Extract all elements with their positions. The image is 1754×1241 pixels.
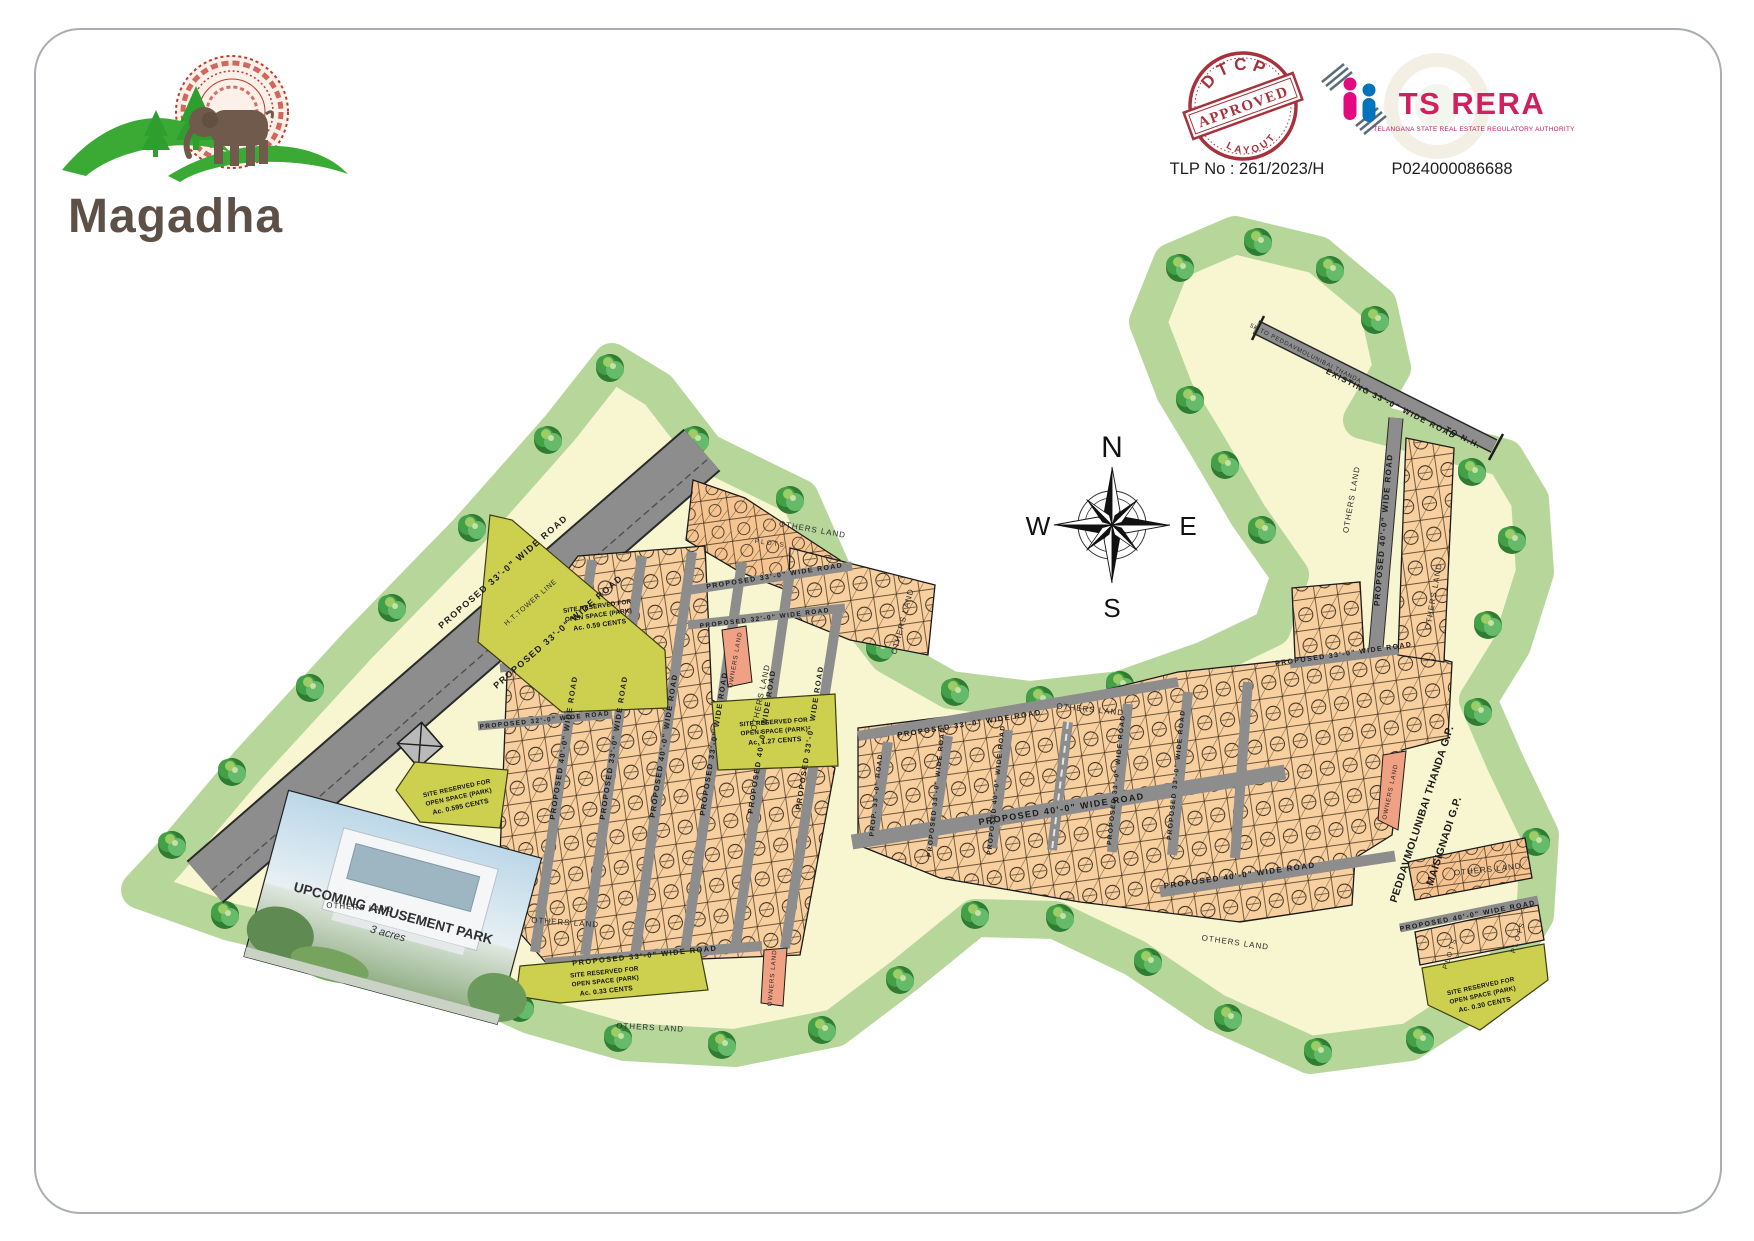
tlp-number: TLP No : 261/2023/H [1170,160,1325,178]
tree-icon [296,674,324,702]
tree-icon [708,1031,736,1059]
tree-icon [211,901,239,929]
tree-icon [1464,698,1492,726]
rera-subtitle: TELANGANA STATE REAL ESTATE REGULATORY A… [1373,126,1575,133]
tree-icon [378,594,406,622]
tree-icon [776,486,804,514]
compass-rose: N E S W [1026,431,1197,623]
tree-icon [1458,458,1486,486]
tree-icon [158,831,186,859]
layout-flyer: UPCOMING AMUSEMENT PARK 3 acres PROPOSED… [0,0,1754,1241]
tree-icon [1214,1004,1242,1032]
tree-icon [1498,526,1526,554]
compass-west-label: W [1026,511,1051,541]
tree-icon [458,514,486,542]
tree-icon [886,966,914,994]
tree-icon [1406,1026,1434,1054]
tree-icon [1244,228,1272,256]
tree-icon [1361,306,1389,334]
tree-icon [1474,611,1502,639]
tree-icon [534,426,562,454]
tree-icon [1134,948,1162,976]
compass-south-label: S [1103,593,1120,623]
compass-star [1054,467,1170,583]
tree-icon [1176,386,1204,414]
brand-logo: Magadha [62,56,348,243]
compass-north-label: N [1101,431,1123,464]
tree-icon [1304,1038,1332,1066]
rera-registration-number: P024000086688 [1391,160,1512,178]
compass-east-label: E [1179,511,1196,541]
tree-icon [1046,904,1074,932]
tree-icon [1211,451,1239,479]
tree-icon [1316,256,1344,284]
rera-figures-icon [1322,64,1386,134]
rera-title: TS RERA [1399,86,1546,121]
ts-rera-logo: TS RERA TELANGANA STATE REAL ESTATE REGU… [1322,60,1575,152]
tree-icon [941,678,969,706]
park-label: SITE RESERVED FOR OPEN SPACE (PARK) Ac. … [739,717,810,748]
dtcp-approved-stamp: DTCP LAYOUT APPROVED [1173,41,1312,171]
plot-block [1292,582,1364,658]
tree-icon [1248,516,1276,544]
tree-icon [1166,254,1194,282]
brand-name: Magadha [68,190,283,243]
tree-icon [596,354,624,382]
site-layout-map: UPCOMING AMUSEMENT PARK 3 acres PROPOSED… [0,0,1754,1241]
tree-icon [218,758,246,786]
tree-icon [808,1016,836,1044]
tree-icon [961,901,989,929]
